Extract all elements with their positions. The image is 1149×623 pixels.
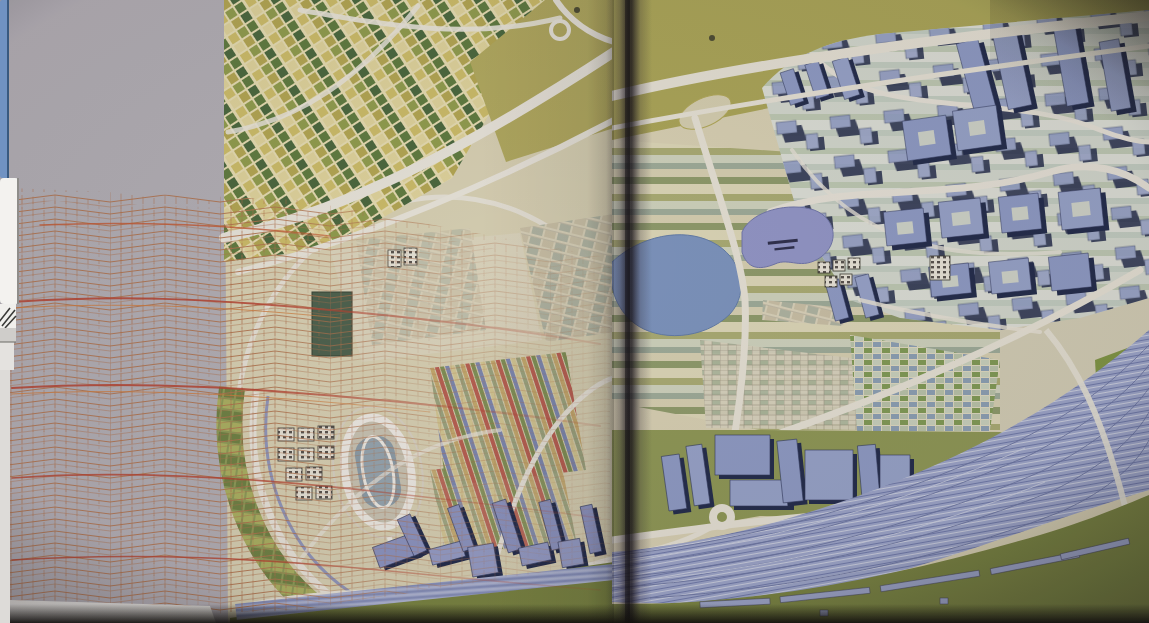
book-spread-photo bbox=[0, 0, 1149, 623]
status-strip bbox=[0, 328, 16, 342]
pale-strip bbox=[0, 342, 14, 370]
panel-border bbox=[17, 178, 19, 304]
resize-grip-icon[interactable] bbox=[0, 304, 16, 328]
scrollbar-border bbox=[7, 0, 9, 178]
window-panel-fragment[interactable] bbox=[0, 178, 19, 304]
window-edge-column bbox=[0, 370, 10, 623]
screen bbox=[0, 0, 1149, 623]
photo-color-cast bbox=[0, 0, 1149, 623]
